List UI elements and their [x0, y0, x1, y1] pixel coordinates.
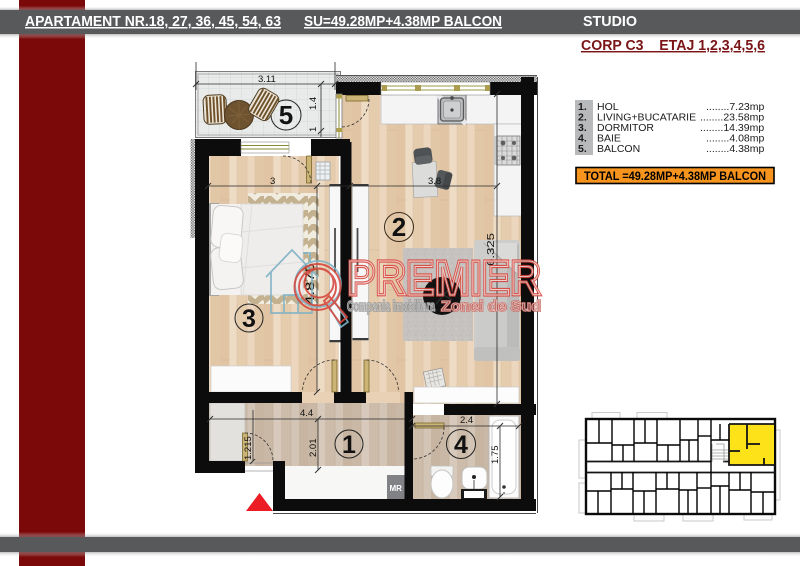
svg-text:1: 1	[342, 431, 356, 459]
svg-text:1: 1	[308, 127, 319, 132]
svg-text:MR: MR	[390, 484, 403, 493]
svg-text:Compania imobiliara: Compania imobiliara	[347, 299, 436, 315]
svg-text:PREMIER: PREMIER	[347, 252, 541, 306]
svg-text:STUDIO: STUDIO	[583, 13, 637, 30]
svg-text:........4.38mp: ........4.38mp	[706, 143, 765, 155]
svg-text:APARTAMENT NR.18, 27, 36, 45,: APARTAMENT NR.18, 27, 36, 45, 54, 63	[25, 13, 281, 30]
svg-text:CORP C3 ETAJ 1,2,3,4,5,6: CORP C3 ETAJ 1,2,3,4,5,6	[581, 38, 765, 54]
svg-text:2.01: 2.01	[308, 439, 319, 458]
svg-text:3: 3	[242, 305, 256, 333]
svg-text:BALCON: BALCON	[597, 143, 640, 155]
svg-text:SU=49.28MP+4.38MP BALCON: SU=49.28MP+4.38MP BALCON	[304, 13, 502, 30]
svg-text:5: 5	[279, 100, 293, 130]
svg-text:TOTAL =49.28MP+4.38MP BALCON: TOTAL =49.28MP+4.38MP BALCON	[584, 169, 766, 183]
svg-text:1.4: 1.4	[308, 97, 319, 110]
svg-text:3.8: 3.8	[428, 176, 441, 187]
svg-text:1.215: 1.215	[243, 436, 254, 460]
svg-text:2: 2	[392, 212, 406, 242]
svg-text:4.4: 4.4	[300, 408, 313, 419]
svg-text:3: 3	[270, 176, 275, 187]
svg-text:5.: 5.	[578, 143, 587, 155]
svg-text:4: 4	[454, 431, 468, 459]
svg-text:3.11: 3.11	[258, 74, 276, 85]
svg-text:1.75: 1.75	[490, 446, 501, 465]
svg-text:Zonei de Sud: Zonei de Sud	[441, 299, 541, 315]
svg-text:2.4: 2.4	[460, 415, 473, 426]
